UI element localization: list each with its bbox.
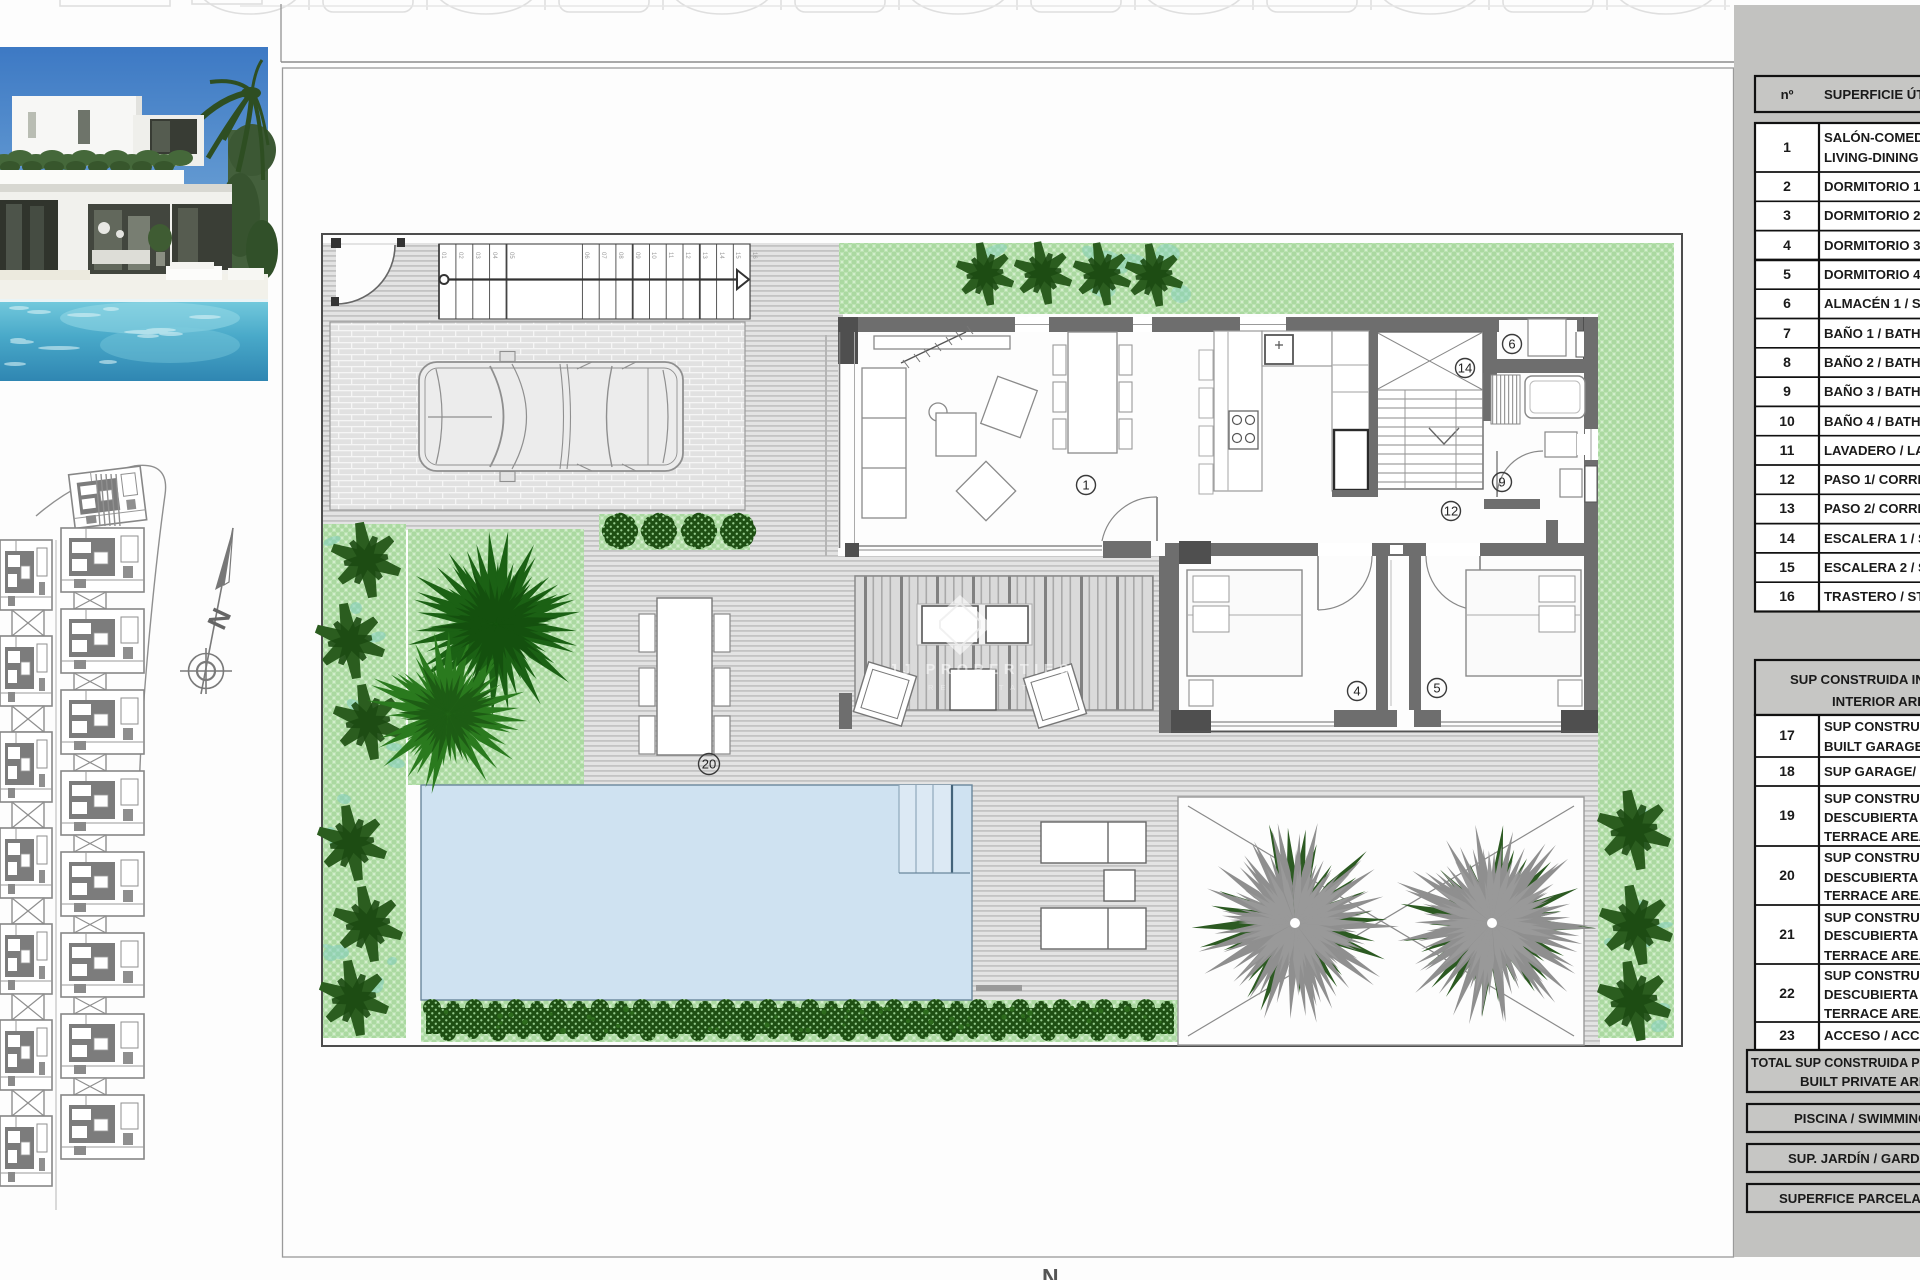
svg-text:5: 5 xyxy=(1783,266,1791,282)
svg-text:ALMACÉN 1 / STORAGE 1: ALMACÉN 1 / STORAGE 1 xyxy=(1824,296,1920,311)
svg-text:12: 12 xyxy=(684,252,690,259)
svg-text:6: 6 xyxy=(1783,295,1791,311)
svg-text:5: 5 xyxy=(1433,681,1440,696)
svg-text:SUP CONSTRUIDA INTERIOR /: SUP CONSTRUIDA INTERIOR / xyxy=(1790,672,1920,687)
svg-text:21: 21 xyxy=(1779,926,1795,942)
svg-text:4: 4 xyxy=(1353,684,1360,699)
svg-text:10: 10 xyxy=(1779,413,1795,429)
svg-text:SUP CONSTRUIDA TERRAZA: SUP CONSTRUIDA TERRAZA xyxy=(1824,968,1920,983)
svg-text:04: 04 xyxy=(491,252,497,259)
svg-text:BUILT GARAGE AREA: BUILT GARAGE AREA xyxy=(1824,739,1920,754)
svg-text:SUPERFICIE ÚTIL / USEFUL: SUPERFICIE ÚTIL / USEFUL xyxy=(1824,87,1920,102)
svg-text:DESCUBIERTA 3 / UNCOVERED: DESCUBIERTA 3 / UNCOVERED xyxy=(1824,928,1920,943)
svg-text:23: 23 xyxy=(1779,1027,1795,1043)
svg-text:INTERIOR AREA: INTERIOR AREA xyxy=(1832,694,1920,709)
svg-text:1: 1 xyxy=(1783,139,1791,155)
svg-text:22: 22 xyxy=(1779,985,1795,1001)
svg-text:ACCESO / ACCESS: ACCESO / ACCESS xyxy=(1824,1028,1920,1043)
svg-text:TERRACE AREA 3: TERRACE AREA 3 xyxy=(1824,948,1920,963)
svg-text:14: 14 xyxy=(1779,530,1795,546)
svg-text:01: 01 xyxy=(440,252,446,259)
svg-text:PISCINA / SWIMMING POOL: PISCINA / SWIMMING POOL xyxy=(1794,1111,1920,1126)
svg-text:14: 14 xyxy=(718,252,724,259)
svg-text:SUP CONSTRUIDA TERRAZA: SUP CONSTRUIDA TERRAZA xyxy=(1824,850,1920,865)
svg-text:11: 11 xyxy=(1780,442,1795,458)
svg-text:6: 6 xyxy=(1508,337,1515,352)
svg-text:15: 15 xyxy=(734,252,740,259)
svg-text:DORMITORIO 1 / BEDROOM 1: DORMITORIO 1 / BEDROOM 1 xyxy=(1824,179,1920,194)
svg-text:06: 06 xyxy=(583,252,589,259)
svg-text:08: 08 xyxy=(617,252,623,259)
svg-text:DORMITORIO 4 / BEDROOM 4: DORMITORIO 4 / BEDROOM 4 xyxy=(1824,267,1920,282)
svg-text:R E A L E S T A T E: R E A L E S T A T E xyxy=(928,683,1041,692)
svg-text:BAÑO 4 / BATHROOM 4: BAÑO 4 / BATHROOM 4 xyxy=(1824,414,1920,429)
svg-text:20: 20 xyxy=(1779,867,1795,883)
svg-text:14: 14 xyxy=(1458,361,1472,376)
svg-text:07: 07 xyxy=(600,252,606,259)
svg-text:BAÑO 3 / BATHROOM 3: BAÑO 3 / BATHROOM 3 xyxy=(1824,384,1920,399)
svg-text:18: 18 xyxy=(1779,763,1795,779)
svg-text:4: 4 xyxy=(1783,237,1791,253)
svg-text:TERRACE AREA 4: TERRACE AREA 4 xyxy=(1824,1006,1920,1021)
svg-text:11: 11 xyxy=(667,252,673,259)
svg-text:03: 03 xyxy=(474,252,480,259)
svg-text:16: 16 xyxy=(751,252,757,259)
svg-text:nº: nº xyxy=(1781,87,1794,102)
svg-text:SUP GARAGE/ GARAGE AREA: SUP GARAGE/ GARAGE AREA xyxy=(1824,764,1920,779)
svg-text:02: 02 xyxy=(457,252,463,259)
svg-text:TRASTERO / STORAGE: TRASTERO / STORAGE xyxy=(1824,589,1920,604)
svg-text:SUP CONSTRUIDA TERRAZA: SUP CONSTRUIDA TERRAZA xyxy=(1824,791,1920,806)
svg-text:05: 05 xyxy=(508,252,514,259)
svg-text:3: 3 xyxy=(1783,207,1791,223)
svg-text:DORMITORIO 3 / BEDROOM 3: DORMITORIO 3 / BEDROOM 3 xyxy=(1824,238,1920,253)
svg-text:ESCALERA 1 / STAIRS 1: ESCALERA 1 / STAIRS 1 xyxy=(1824,531,1920,546)
svg-text:SUP CONSTRUIDA GARAJE /: SUP CONSTRUIDA GARAJE / xyxy=(1824,719,1920,734)
svg-text:BAÑO 2 / BATHROOM 2: BAÑO 2 / BATHROOM 2 xyxy=(1824,355,1920,370)
svg-text:12: 12 xyxy=(1779,471,1795,487)
svg-text:SUP. JARDÍN / GARDEN AREA: SUP. JARDÍN / GARDEN AREA xyxy=(1788,1151,1920,1166)
svg-text:TERRACE AREA 1: TERRACE AREA 1 xyxy=(1824,829,1920,844)
svg-text:SUPERFICE PARCELA / PLOT: SUPERFICE PARCELA / PLOT xyxy=(1779,1191,1920,1206)
svg-text:BUILT PRIVATE AREA: BUILT PRIVATE AREA xyxy=(1800,1074,1920,1089)
svg-text:TOTAL SUP CONSTRUIDA PRIVADA /: TOTAL SUP CONSTRUIDA PRIVADA / xyxy=(1751,1056,1920,1070)
svg-text:09: 09 xyxy=(634,252,640,259)
svg-text:12: 12 xyxy=(1444,504,1458,519)
svg-text:TERRACE AREA 2: TERRACE AREA 2 xyxy=(1824,888,1920,903)
svg-text:13: 13 xyxy=(1779,500,1795,516)
svg-text:PASO 1/ CORRIDOR 1: PASO 1/ CORRIDOR 1 xyxy=(1824,472,1920,487)
svg-text:ESCALERA 2 / STAIRS 2: ESCALERA 2 / STAIRS 2 xyxy=(1824,560,1920,575)
svg-text:8: 8 xyxy=(1783,354,1791,370)
svg-text:LIVING-DINING ROOM: LIVING-DINING ROOM xyxy=(1824,150,1920,165)
svg-text:JJ PROPERTIES: JJ PROPERTIES xyxy=(889,662,1074,678)
svg-text:SALÓN-COMEDOR /: SALÓN-COMEDOR / xyxy=(1824,130,1920,145)
svg-text:19: 19 xyxy=(1779,807,1795,823)
svg-text:7: 7 xyxy=(1783,325,1791,341)
svg-text:10: 10 xyxy=(650,252,656,259)
svg-text:1: 1 xyxy=(1082,478,1089,493)
svg-text:LAVADERO / LAUNDRY: LAVADERO / LAUNDRY xyxy=(1824,443,1920,458)
svg-text:9: 9 xyxy=(1498,475,1505,490)
svg-text:DESCUBIERTA 1 / UNCOVERED: DESCUBIERTA 1 / UNCOVERED xyxy=(1824,810,1920,825)
svg-text:2: 2 xyxy=(1783,178,1791,194)
svg-text:N: N xyxy=(1042,1264,1059,1280)
svg-text:DESCUBIERTA 4 / UNCOVERED: DESCUBIERTA 4 / UNCOVERED xyxy=(1824,987,1920,1002)
svg-text:DORMITORIO 2 / BEDROOM 2: DORMITORIO 2 / BEDROOM 2 xyxy=(1824,208,1920,223)
svg-text:13: 13 xyxy=(701,252,707,259)
svg-text:15: 15 xyxy=(1779,559,1795,575)
svg-text:BAÑO 1 / BATHROOM 1: BAÑO 1 / BATHROOM 1 xyxy=(1824,326,1920,341)
svg-text:DESCUBIERTA 2 / UNCOVERED: DESCUBIERTA 2 / UNCOVERED xyxy=(1824,870,1920,885)
svg-text:20: 20 xyxy=(702,757,716,772)
svg-text:SUP CONSTRUIDA TERRAZA: SUP CONSTRUIDA TERRAZA xyxy=(1824,910,1920,925)
svg-text:17: 17 xyxy=(1779,727,1795,743)
svg-text:9: 9 xyxy=(1783,383,1791,399)
svg-text:PASO 2/ CORRIDOR 2: PASO 2/ CORRIDOR 2 xyxy=(1824,501,1920,516)
svg-text:16: 16 xyxy=(1779,588,1795,604)
